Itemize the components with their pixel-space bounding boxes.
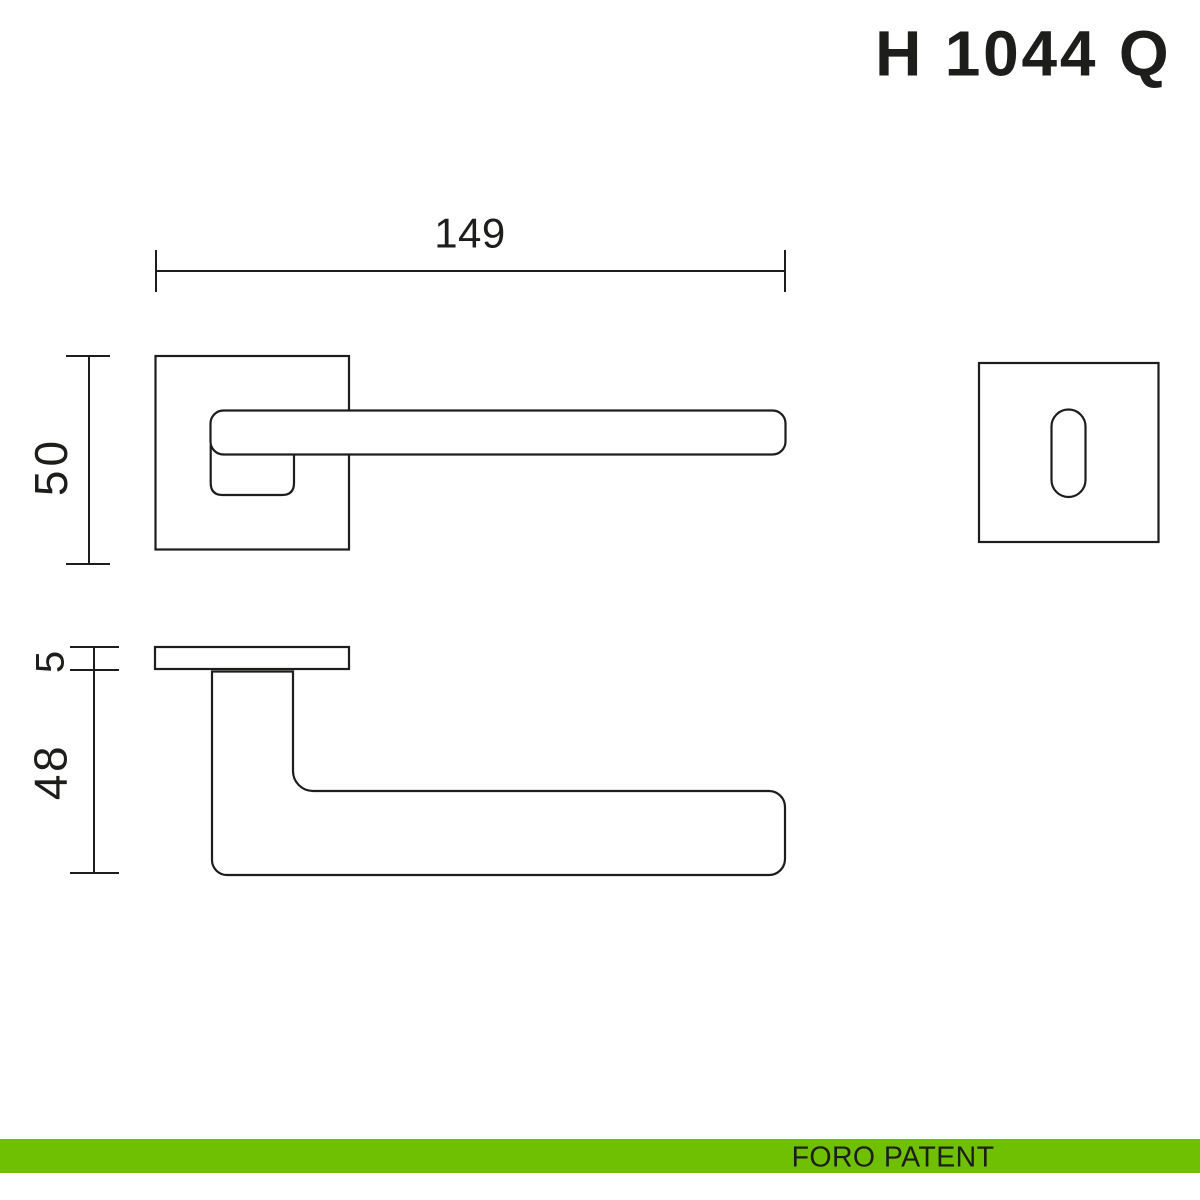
svg-text:50: 50 bbox=[25, 437, 77, 496]
svg-text:149: 149 bbox=[434, 210, 506, 257]
svg-text:48: 48 bbox=[25, 744, 77, 800]
svg-text:FORO PATENT: FORO PATENT bbox=[792, 1142, 995, 1174]
svg-text:5: 5 bbox=[29, 651, 73, 673]
svg-text:H 1044 Q: H 1044 Q bbox=[875, 18, 1171, 90]
